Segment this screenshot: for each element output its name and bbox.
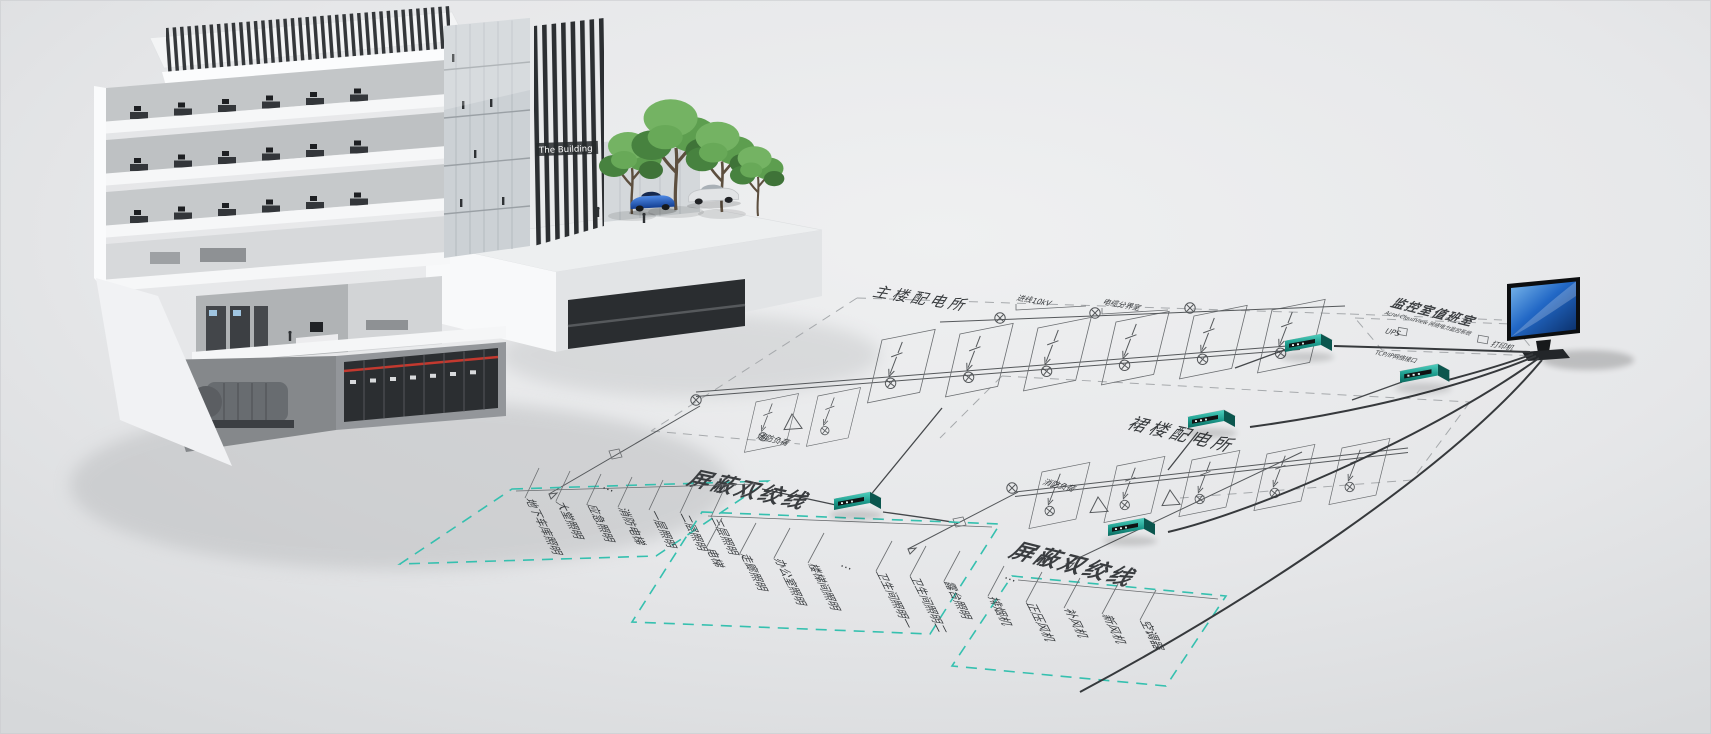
scene-3d-building-power-diagram: The Building [0,0,1711,734]
building-sign: The Building [538,144,593,156]
louver-facade: The Building [534,18,604,246]
atrium-glass [444,18,530,258]
scene-canvas: The Building [0,0,1711,734]
switchgear-room [336,342,506,430]
